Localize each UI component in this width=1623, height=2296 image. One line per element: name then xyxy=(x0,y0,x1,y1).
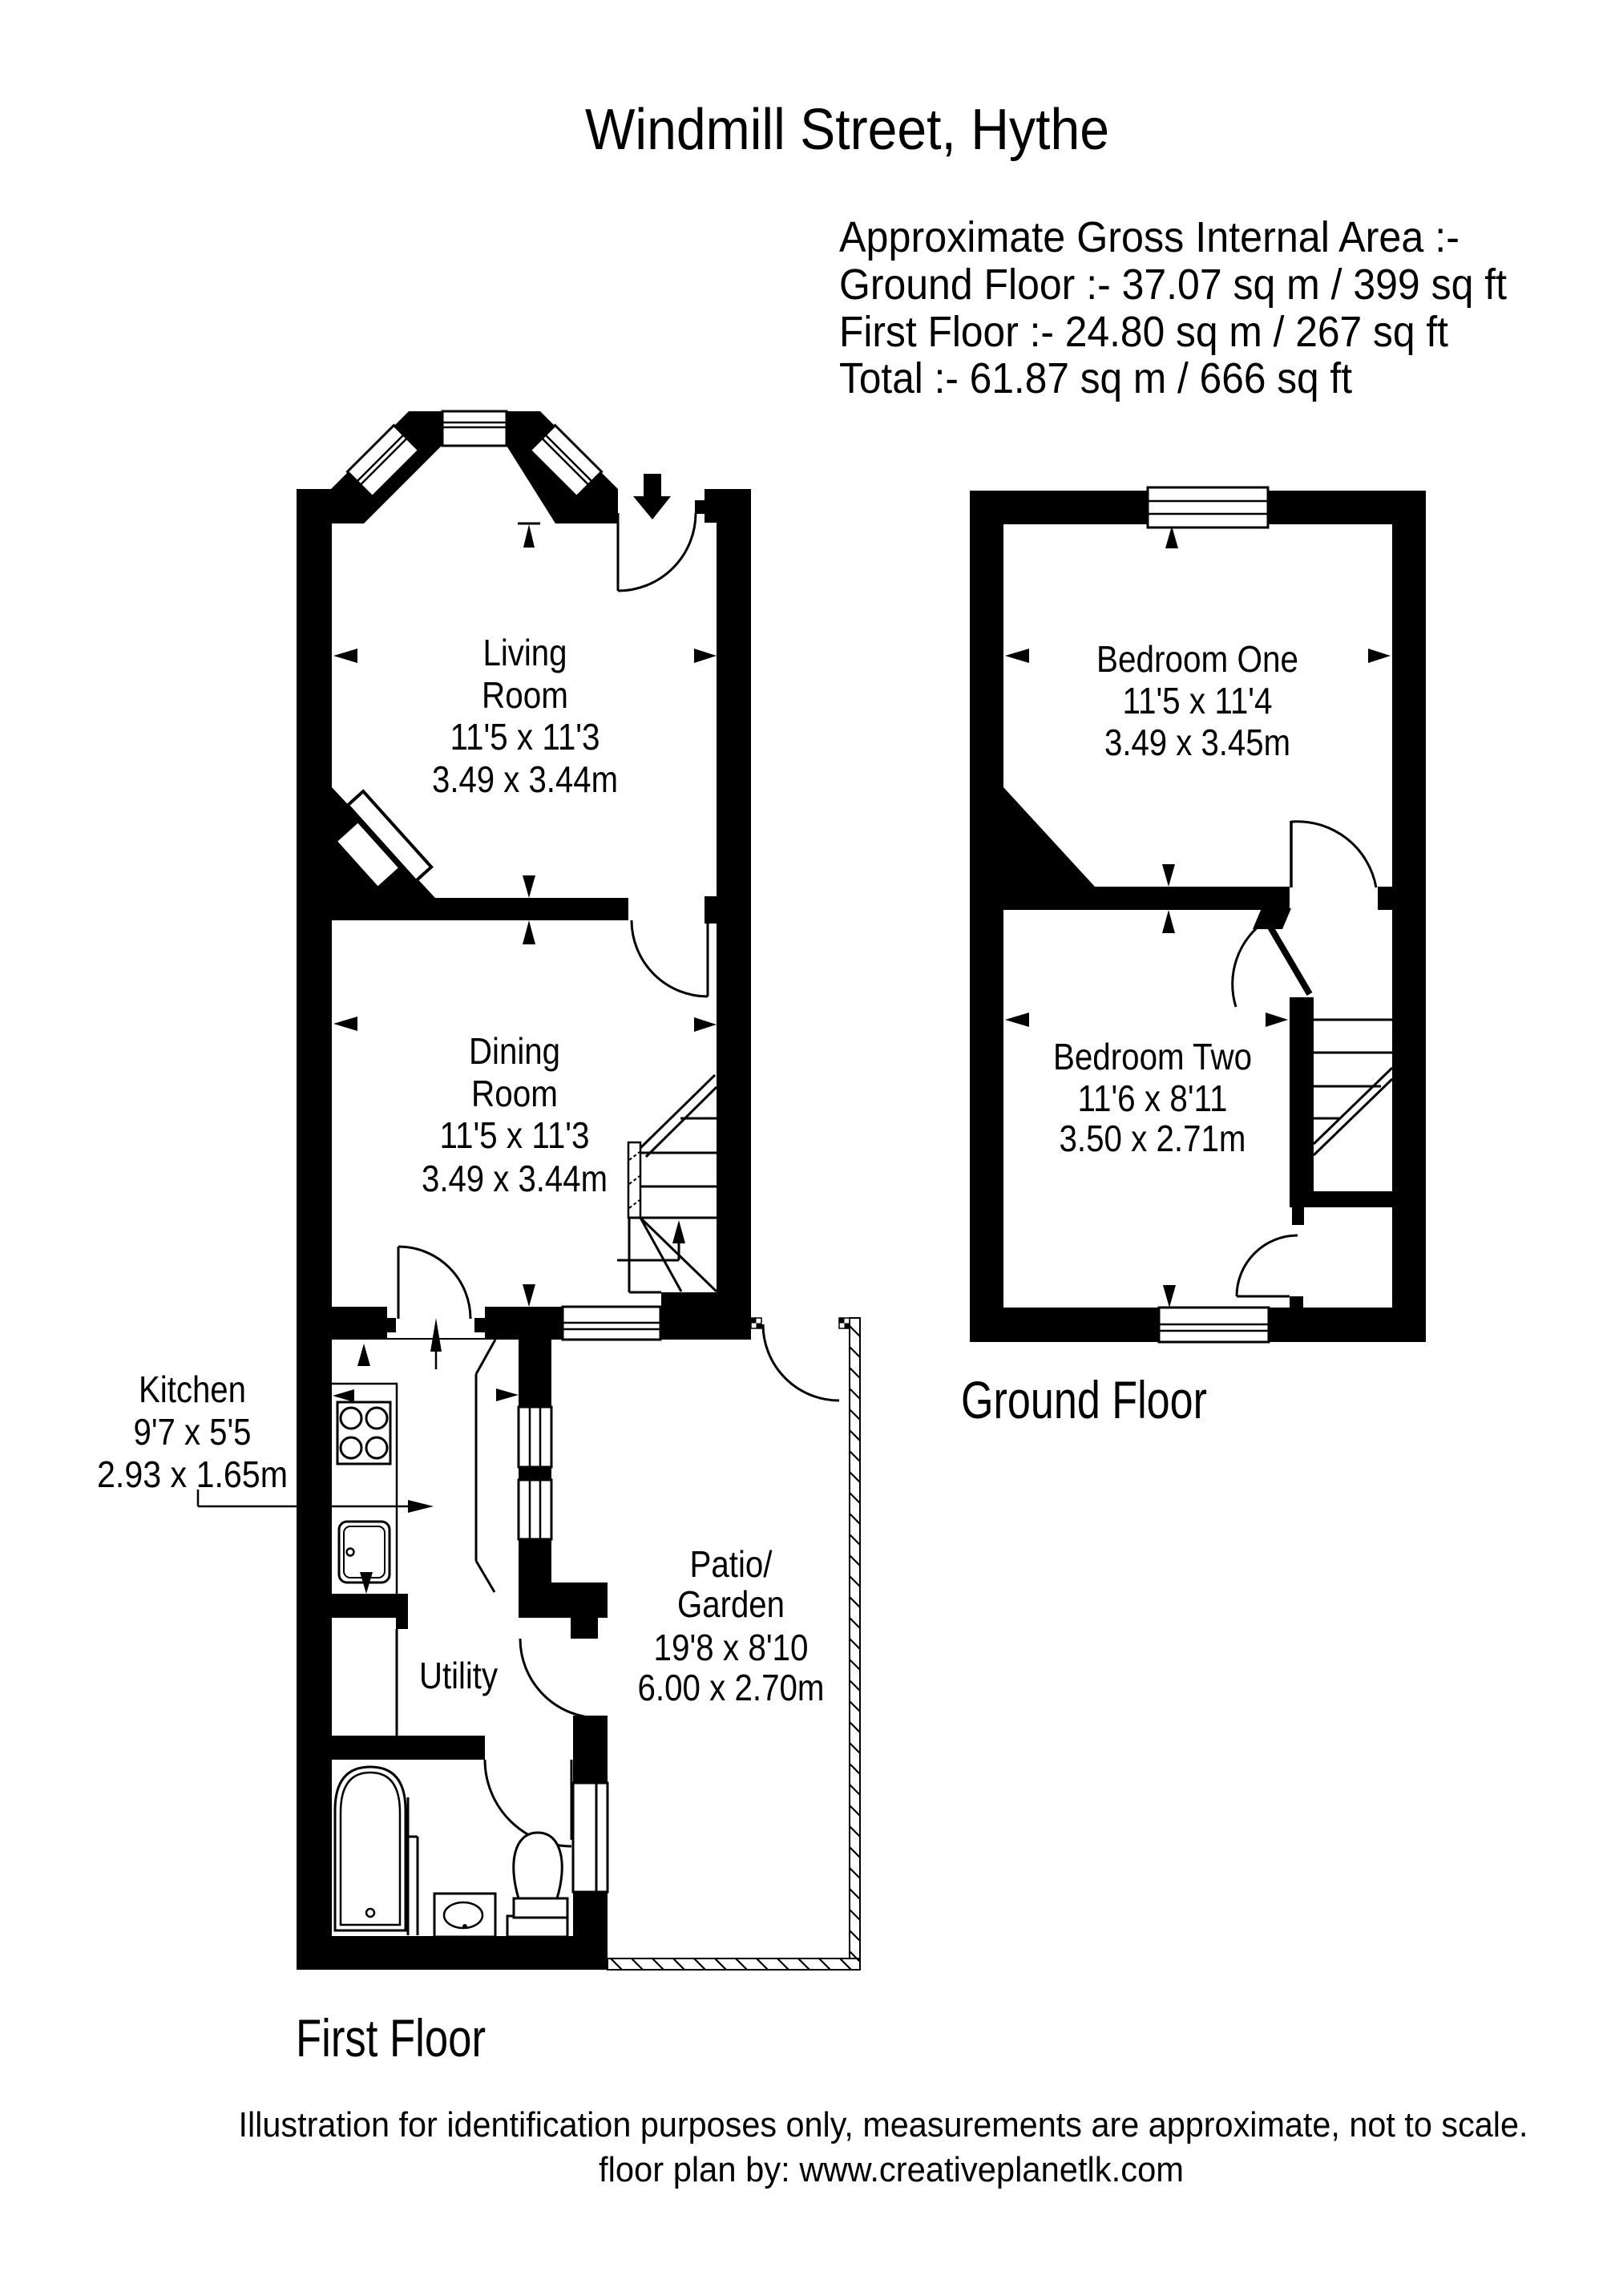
svg-text:floor plan by: www.creativepla: floor plan by: www.creativeplanetlk.com xyxy=(599,2150,1184,2189)
svg-text:Illustration for identificatio: Illustration for identification purposes… xyxy=(239,2105,1528,2144)
svg-text:Bedroom One: Bedroom One xyxy=(1096,638,1298,680)
svg-text:6.00 x 2.70m: 6.00 x 2.70m xyxy=(638,1667,825,1708)
svg-text:Approximate Gross Internal Are: Approximate Gross Internal Area :- xyxy=(839,213,1459,261)
svg-text:Dining: Dining xyxy=(469,1030,560,1072)
svg-text:9'7 x 5'5: 9'7 x 5'5 xyxy=(134,1411,252,1453)
svg-text:2.93 x 1.65m: 2.93 x 1.65m xyxy=(97,1453,288,1495)
svg-text:Living: Living xyxy=(483,632,567,673)
svg-text:19'8 x 8'10: 19'8 x 8'10 xyxy=(654,1627,809,1668)
svg-text:First Floor :- 24.80 sq m / 26: First Floor :- 24.80 sq m / 267 sq ft xyxy=(839,308,1448,356)
svg-text:Garden: Garden xyxy=(677,1583,785,1625)
svg-text:11'6 x 8'11: 11'6 x 8'11 xyxy=(1078,1077,1228,1119)
svg-text:Kitchen: Kitchen xyxy=(139,1368,246,1410)
svg-text:11'5 x 11'3: 11'5 x 11'3 xyxy=(450,716,600,758)
svg-text:Total :- 61.87 sq m / 666 sq f: Total :- 61.87 sq m / 666 sq ft xyxy=(839,354,1352,402)
svg-text:3.49 x 3.44m: 3.49 x 3.44m xyxy=(432,758,618,800)
svg-text:Utility: Utility xyxy=(419,1655,498,1696)
svg-text:Bedroom Two: Bedroom Two xyxy=(1053,1036,1252,1077)
svg-text:First Floor: First Floor xyxy=(296,2008,486,2068)
svg-text:Windmill Street, Hythe: Windmill Street, Hythe xyxy=(585,98,1109,162)
svg-text:Room: Room xyxy=(482,674,568,716)
svg-text:Room: Room xyxy=(471,1073,558,1114)
svg-text:3.49 x 3.44m: 3.49 x 3.44m xyxy=(422,1158,608,1199)
svg-text:3.49 x 3.45m: 3.49 x 3.45m xyxy=(1104,722,1290,763)
svg-text:Ground Floor :- 37.07 sq m / 3: Ground Floor :- 37.07 sq m / 399 sq ft xyxy=(839,261,1507,309)
svg-text:3.50 x 2.71m: 3.50 x 2.71m xyxy=(1060,1118,1246,1159)
svg-text:Patio/: Patio/ xyxy=(690,1543,773,1585)
svg-text:Ground Floor: Ground Floor xyxy=(961,1370,1207,1429)
svg-text:11'5 x 11'4: 11'5 x 11'4 xyxy=(1123,680,1273,722)
svg-text:11'5 x 11'3: 11'5 x 11'3 xyxy=(440,1114,590,1156)
